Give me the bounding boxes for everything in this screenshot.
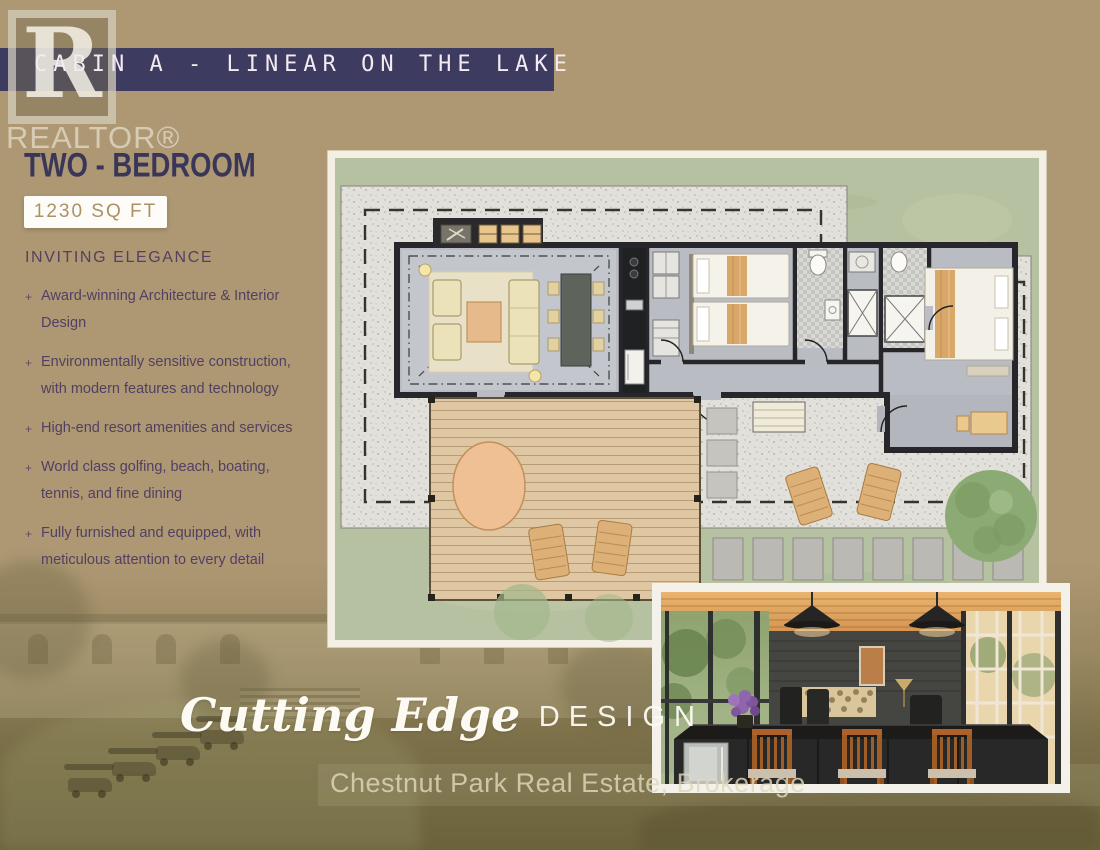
watermark-golf-cart (108, 748, 158, 782)
feature-item: +Fully furnished and equipped, with meti… (25, 520, 309, 574)
plan-deck-table (453, 442, 525, 530)
bullet-icon: + (25, 455, 32, 482)
plan-bathroom (797, 248, 843, 348)
features-heading: INVITING ELEGANCE (25, 249, 213, 267)
plan-kitchen (623, 248, 646, 393)
watermark-window (156, 634, 176, 664)
watermark-golf-cart (64, 764, 114, 798)
page-title: CABIN A - LINEAR ON THE LAKE (34, 52, 594, 77)
plan-hall-bath (848, 252, 877, 336)
square-footage-badge: 1230 SQ FT (24, 196, 167, 228)
square-footage-value: 1230 SQ FT (34, 201, 158, 223)
bullet-icon: + (25, 416, 32, 443)
feature-item: +Environmentally sensitive construction,… (25, 349, 309, 403)
realtor-wordmark: REALTOR® (6, 120, 180, 156)
floor-plan-image (327, 150, 1047, 648)
plan-tree (945, 470, 1037, 562)
bullet-icon: + (25, 521, 32, 548)
feature-list: +Award-winning Architecture & Interior D… (25, 283, 309, 586)
feature-item: +Award-winning Architecture & Interior D… (25, 283, 309, 337)
plan-deck-lounger (592, 520, 633, 576)
bullet-icon: + (25, 284, 32, 311)
interior-photo (652, 583, 1070, 793)
feature-item: +High-end resort amenities and services (25, 415, 309, 442)
bullet-icon: + (25, 350, 32, 377)
tagline-plain-text: DESIGN (539, 701, 704, 733)
flyer-page: R REALTOR® CABIN A - LINEAR ON THE LAKE … (0, 0, 1100, 850)
feature-item: +World class golfing, beach, boating, te… (25, 454, 309, 508)
plan-firewood-bench (753, 402, 805, 432)
tagline-script-text: Cutting Edge (180, 688, 520, 742)
brokerage-name: Chestnut Park Real Estate, Brokerage (330, 768, 806, 799)
watermark-window (92, 634, 112, 664)
plan-deck (428, 396, 701, 601)
design-tagline: Cutting Edge DESIGN (180, 688, 704, 742)
